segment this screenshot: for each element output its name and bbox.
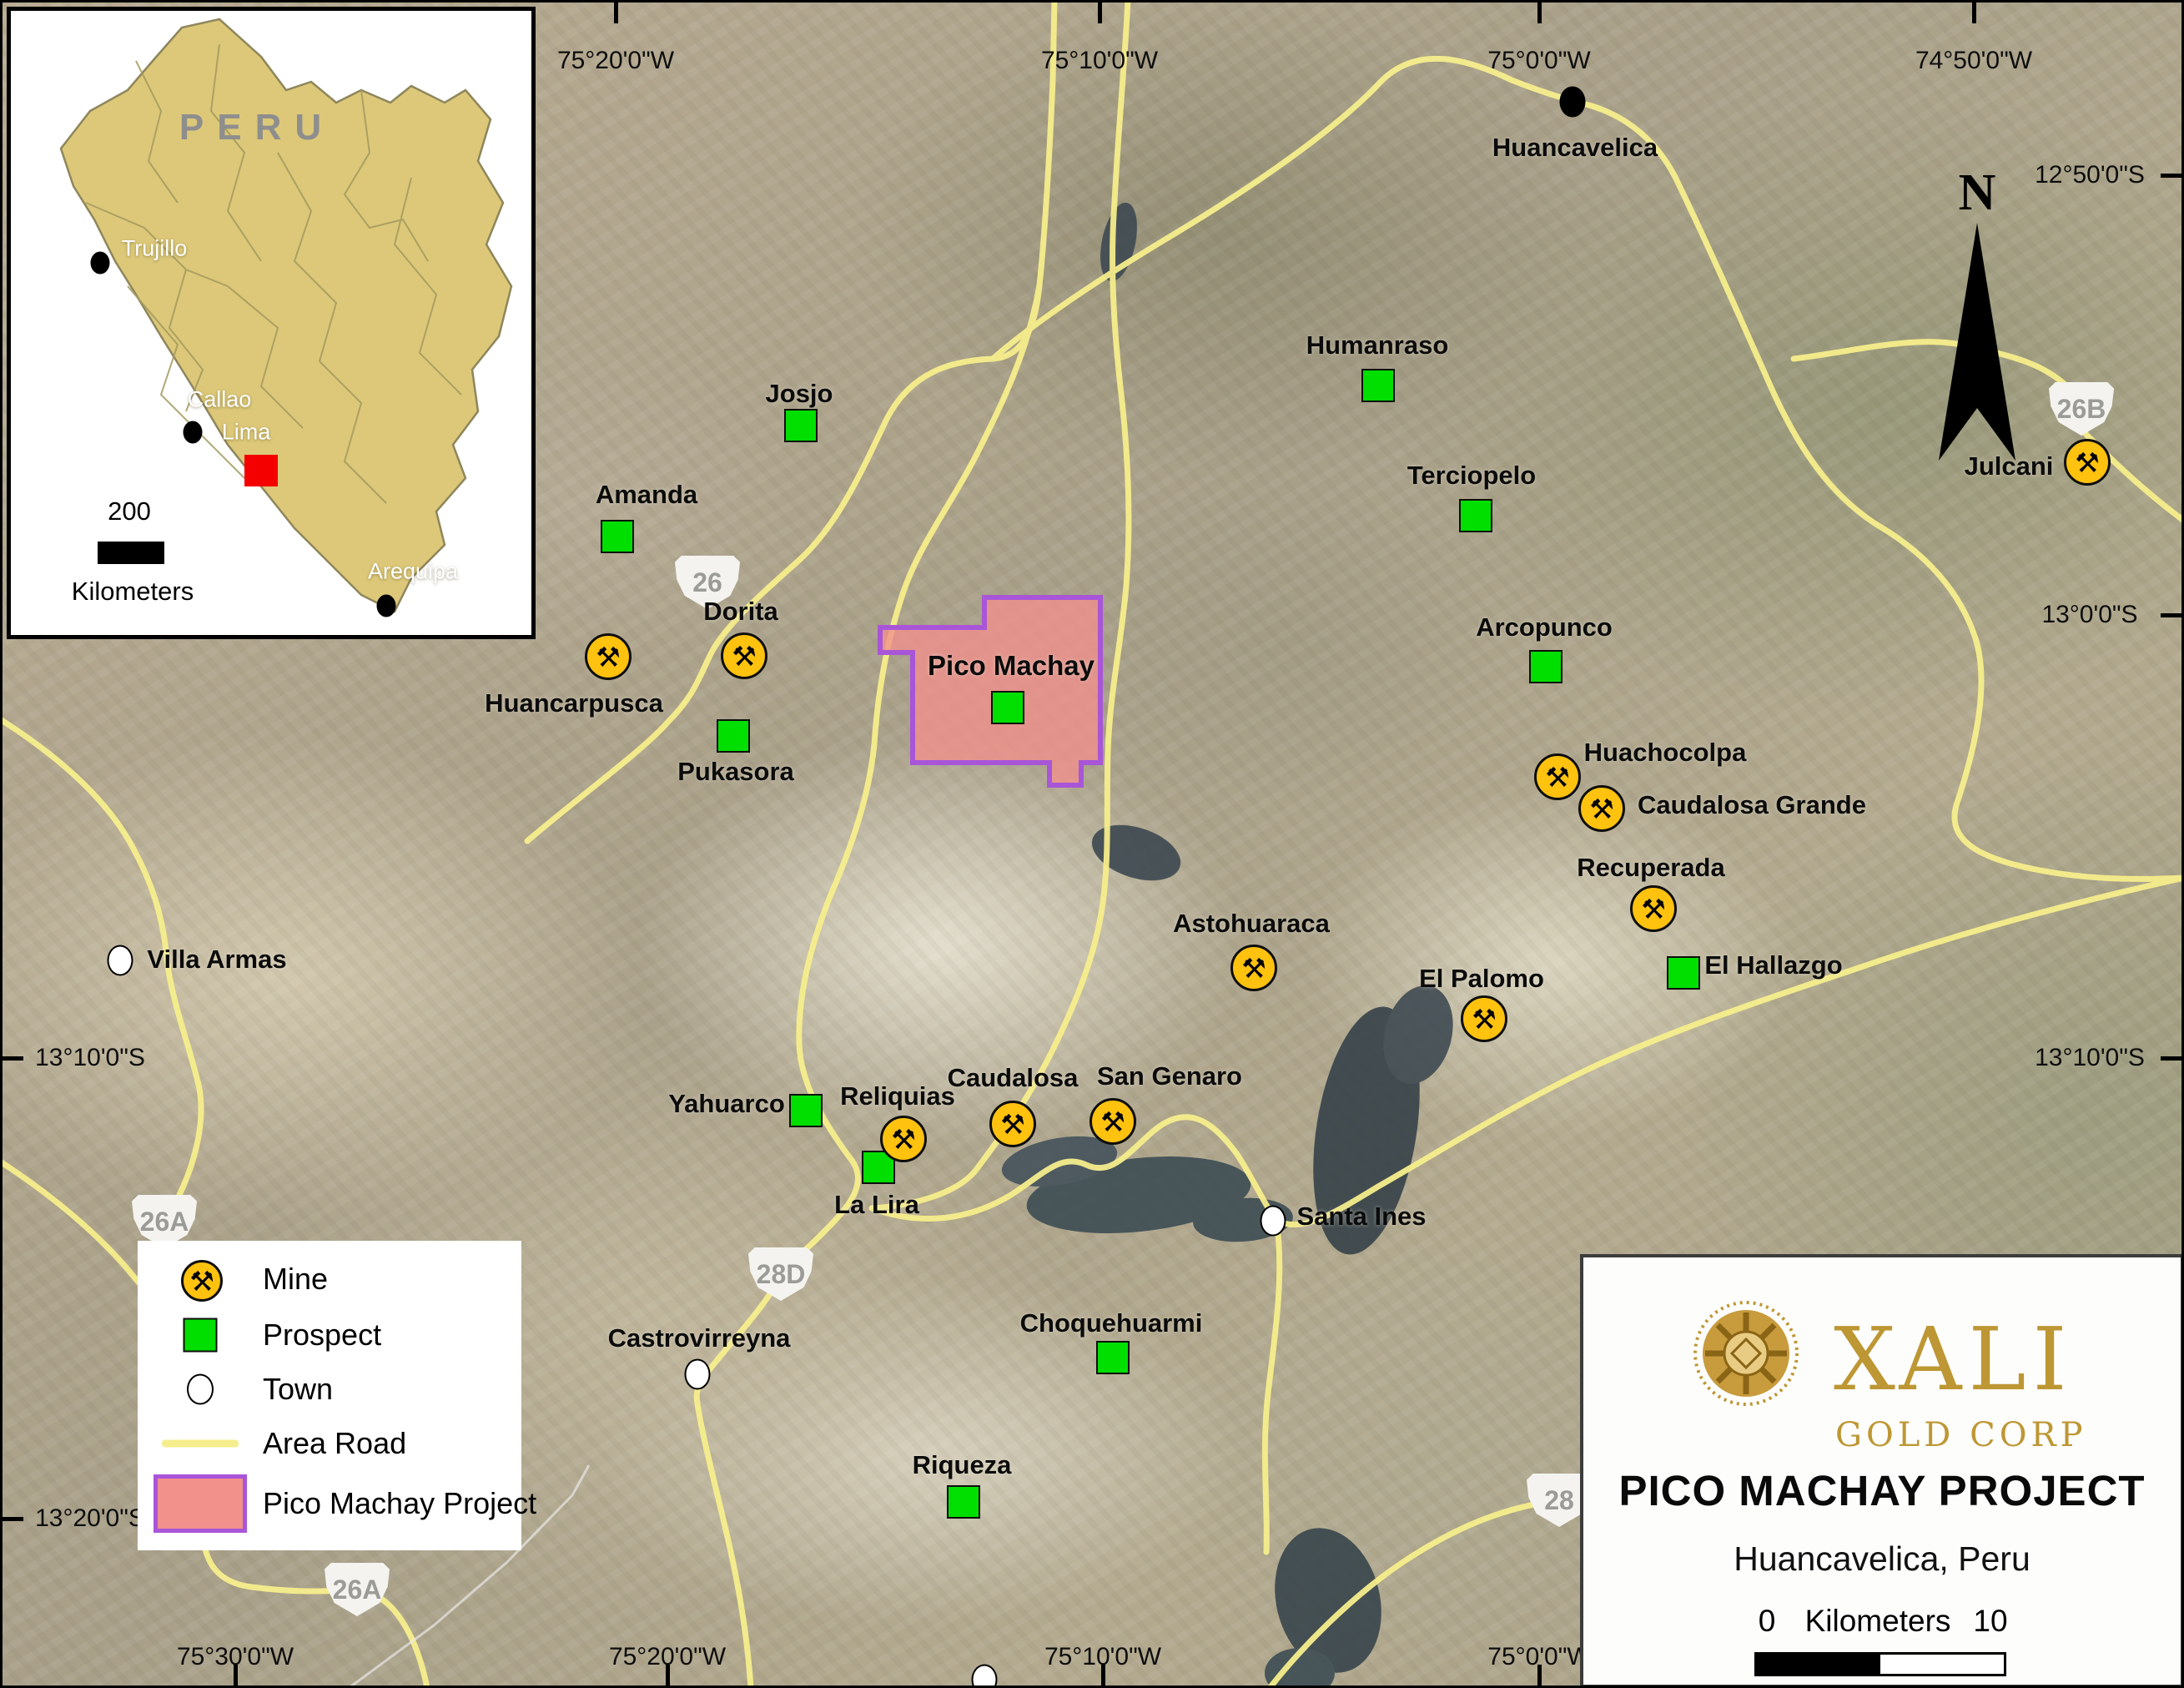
latitude-label: 13°20'0"S [35,1504,145,1533]
map-subtitle: Huancavelica, Peru [1583,1539,2181,1579]
prospect-label: Yahuarco [668,1089,785,1119]
pick-and-shovel-icon: ⚒ [1589,795,1614,823]
longitude-label: 75°20'0"W [557,47,674,75]
mine-marker[interactable]: ⚒ [721,632,767,679]
prospect-label: Josjo [766,379,833,409]
legend-project-swatch [153,1474,247,1533]
graticule-tick [2161,174,2184,178]
graticule-tick [2161,613,2184,617]
latitude-label: 13°10'0"S [2035,1044,2145,1072]
town-label: Santa Ines [1296,1202,1426,1232]
inset-city-label: Arequipa [368,559,458,585]
xali-sun-logo-icon [1692,1299,1800,1408]
prospect-marker[interactable] [991,691,1024,724]
town-label: Huancavelica [1492,133,1658,163]
mine-label: Caudalosa [948,1063,1079,1093]
legend-label: Town [263,1372,333,1407]
brand-name: XALI [1834,1316,2074,1403]
pick-and-shovel-icon: ⚒ [1100,1108,1125,1136]
mine-marker[interactable]: ⚒ [1230,945,1277,991]
latitude-label: 13°10'0"S [35,1044,145,1072]
prospect-marker[interactable] [717,719,750,753]
peru-inset-map: PERU 200 Kilometers TrujilloCallaoLimaAr… [7,7,536,639]
route-number-label: 26B [2057,394,2106,425]
mine-marker[interactable]: ⚒ [989,1101,1036,1147]
title-box: XALI GOLD CORP PICO MACHAY PROJECT Huanc… [1580,1254,2184,1688]
pick-and-shovel-icon: ⚒ [1545,763,1570,791]
inset-city-dot [91,252,110,275]
longitude-label: 75°10'0"W [1041,47,1158,75]
map-screenshot: Pico Machay N PERU 200 [0,0,2184,1688]
mine-label: Reliquias [840,1081,955,1111]
town-label: Villa Armas [147,945,286,975]
lake [1084,814,1187,890]
prospect-label: La Lira [834,1190,919,1220]
peru-country-label: PERU [179,107,335,149]
graticule-tick [614,0,618,23]
scale-ten: 10 [1973,1604,2007,1639]
mine-marker[interactable]: ⚒ [1534,753,1581,800]
prospect-marker[interactable] [1529,650,1563,683]
inset-scale-value: 200 [108,496,151,527]
town-marker[interactable] [685,1359,711,1390]
mine-label: Huachocolpa [1584,738,1747,768]
project-area-label: Pico Machay [928,650,1095,682]
pick-and-shovel-icon: ⚒ [1641,895,1666,923]
graticule-tick [0,1517,23,1521]
latitude-label: 13°0'0"S [2041,601,2137,629]
legend-label: Prospect [263,1318,381,1353]
pick-and-shovel-icon: ⚒ [732,642,757,670]
inset-city-dot [184,421,203,444]
lake [1094,199,1143,285]
mine-marker[interactable]: ⚒ [1578,785,1625,832]
graticule-tick [0,1056,23,1061]
pick-and-shovel-icon: ⚒ [181,1260,223,1302]
prospect-marker[interactable] [947,1485,980,1519]
inset-city-label: Lima [222,420,271,446]
legend-label: Area Road [263,1426,406,1461]
mine-label: Dorita [703,597,778,627]
map-scalebar: 0 Kilometers 10 [1583,1604,2181,1687]
map-title: PICO MACHAY PROJECT [1583,1466,2181,1515]
mine-label: Astohuaraca [1173,909,1330,939]
graticule-tick [1098,0,1102,23]
prospect-label: Amanda [596,480,697,510]
graticule-tick [666,1665,670,1688]
inset-scale-bar [98,542,164,564]
latitude-label: 12°50'0"S [2035,161,2145,189]
lakes-group [998,199,1463,1688]
legend-road-icon [162,1440,239,1448]
town-marker[interactable] [1560,87,1586,118]
route-number-label: 26 [692,567,722,598]
pick-and-shovel-icon: ⚒ [1472,1005,1497,1033]
legend-mine-icon: ⚒ [181,1260,219,1298]
prospect-marker[interactable] [1361,369,1395,402]
prospect-marker[interactable] [1667,956,1700,990]
north-letter: N [1934,164,2020,223]
prospect-marker[interactable] [601,520,634,553]
town-marker[interactable] [1261,1206,1286,1237]
longitude-label: 75°0'0"W [1487,47,1590,75]
project-area-polygon[interactable] [880,597,1100,785]
inset-scale-unit: Kilometers [72,577,194,607]
scale-unit: Kilometers [1805,1604,1951,1639]
route-number-label: 26A [333,1575,382,1605]
mine-marker[interactable]: ⚒ [585,633,632,680]
prospect-label: Humanraso [1306,330,1449,360]
prospect-label: Arcopunco [1476,612,1613,642]
inset-city-dot [377,595,396,617]
pick-and-shovel-icon: ⚒ [1000,1111,1025,1138]
mine-label: Huancarpusca [485,688,663,718]
mine-marker[interactable]: ⚒ [1461,995,1507,1042]
graticule-tick [234,1665,238,1688]
graticule-tick [1101,1665,1105,1688]
prospect-marker[interactable] [1459,499,1492,532]
graticule-tick [1537,0,1542,23]
prospect-label: El Hallazgo [1704,950,1842,980]
mine-label: Caudalosa Grande [1638,790,1866,820]
prospect-marker[interactable] [789,1094,823,1127]
north-arrow-icon [1934,223,2020,465]
brand-subname: GOLD CORP [1835,1416,2087,1454]
inset-city-label: Callao [188,387,252,413]
route-number-label: 28 [1544,1485,1574,1516]
project-location-marker[interactable] [244,455,278,486]
route-number-label: 26A [140,1207,189,1237]
legend-label: Mine [263,1262,328,1297]
pick-and-shovel-icon: ⚒ [1241,955,1266,982]
scalebar-graphic [1754,1652,2006,1676]
legend-label: Pico Machay Project [263,1486,536,1521]
pick-and-shovel-icon: ⚒ [891,1126,916,1153]
prospect-label: Choquehuarmi [1020,1308,1203,1338]
legend-prospect-icon [184,1318,218,1353]
mine-label: San Genaro [1097,1061,1242,1091]
mine-marker[interactable]: ⚒ [1089,1098,1136,1145]
longitude-label: 74°50'0"W [1915,47,2032,75]
prospect-marker[interactable] [1096,1341,1130,1374]
mine-marker[interactable]: ⚒ [2064,439,2111,486]
pick-and-shovel-icon: ⚒ [596,643,621,671]
graticule-tick [1972,0,1976,23]
prospect-label: Pukasora [677,757,794,787]
town-label: Castrovirreyna [608,1323,791,1353]
prospect-label: Riqueza [913,1450,1012,1480]
map-legend: ⚒MineProspectTownArea RoadPico Machay Pr… [138,1241,521,1550]
graticule-tick [2161,1056,2184,1061]
prospect-label: Terciopelo [1407,461,1536,491]
route-number-label: 28D [757,1259,806,1290]
graticule-tick [1537,1665,1542,1688]
mine-marker[interactable]: ⚒ [880,1116,927,1162]
north-arrow: N [1934,164,2020,469]
peru-outline-map [11,11,531,635]
mine-marker[interactable]: ⚒ [1630,885,1677,932]
scale-zero: 0 [1759,1604,1776,1639]
mine-label: El Palomo [1419,964,1544,994]
area-road-path [1265,1220,1279,1552]
town-marker[interactable] [108,945,133,976]
legend-town-icon [187,1374,214,1405]
inset-city-label: Trujillo [122,236,188,262]
pick-and-shovel-icon: ⚒ [2075,449,2100,476]
brand-row: XALI GOLD CORP [1583,1291,2181,1441]
prospect-marker[interactable] [784,409,818,442]
mine-label: Recuperada [1577,853,1724,883]
